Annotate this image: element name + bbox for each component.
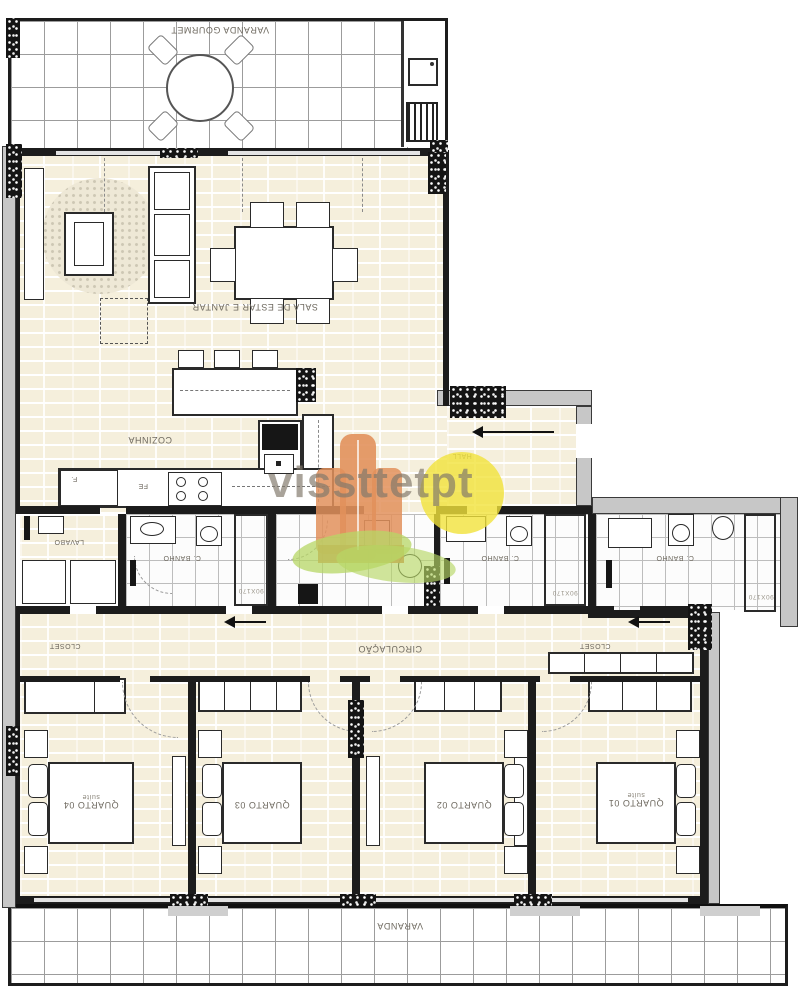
floor-plan: VARANDA GOURMET SALA DE ESTAR E JANTAR C… bbox=[0, 0, 800, 998]
wall bbox=[497, 506, 592, 514]
sofa-cushion bbox=[154, 260, 190, 298]
closet-divider bbox=[94, 680, 95, 712]
door-swing-arrow bbox=[226, 616, 266, 628]
pillow-icon bbox=[202, 764, 222, 798]
pillow-icon bbox=[28, 802, 48, 836]
column bbox=[6, 18, 20, 58]
wall bbox=[96, 606, 226, 614]
wall bbox=[588, 514, 596, 618]
column bbox=[160, 148, 198, 158]
island-dashed-line bbox=[180, 390, 290, 391]
wall bbox=[16, 676, 120, 682]
bath1-toilet-bowl bbox=[200, 526, 218, 542]
label-quarto1: QUARTO 01 suíte bbox=[586, 786, 686, 814]
column bbox=[428, 152, 446, 194]
chair-icon bbox=[296, 202, 330, 228]
sliding-door bbox=[56, 150, 172, 156]
armchair-seat bbox=[74, 222, 104, 266]
closet-divider bbox=[584, 654, 585, 672]
closet-divider bbox=[656, 654, 657, 672]
label-sala: SALA DE ESTAR E JANTAR bbox=[150, 300, 360, 314]
label-f: F. bbox=[64, 474, 84, 484]
column bbox=[430, 140, 448, 152]
bath2-toilet-bowl bbox=[510, 526, 528, 542]
nightstand-icon bbox=[676, 730, 700, 758]
bath3-sink-icon bbox=[608, 518, 652, 548]
lavabo-basin-icon bbox=[38, 516, 64, 534]
bath3-faucet-icon bbox=[606, 560, 612, 588]
bath1-basin bbox=[140, 522, 164, 536]
outer-wall bbox=[708, 612, 720, 904]
closet-right-unit bbox=[548, 652, 694, 674]
quarto4-suite: suíte bbox=[82, 794, 100, 801]
label-quarto2: QUARTO 02 bbox=[419, 798, 509, 812]
label-banho2: C. BANHO bbox=[460, 552, 540, 564]
wall bbox=[436, 506, 447, 514]
pillow-icon bbox=[504, 764, 524, 798]
label-closet-right: CLOSET bbox=[560, 640, 630, 652]
pillow-icon bbox=[28, 764, 48, 798]
quarto4-name: QUARTO 04 bbox=[63, 801, 118, 811]
quarto1-name: QUARTO 01 bbox=[608, 799, 663, 809]
bath2-faucet-icon bbox=[444, 558, 450, 584]
wall bbox=[447, 506, 467, 514]
sliding-door bbox=[228, 150, 420, 156]
passage-toilet-icon bbox=[364, 520, 390, 550]
window-sill bbox=[510, 906, 580, 916]
label-banho3: C. BANHO bbox=[630, 552, 720, 564]
wardrobe-divider bbox=[474, 682, 475, 710]
column bbox=[6, 144, 22, 198]
counter-dashed-line bbox=[318, 420, 319, 502]
wardrobe-q1 bbox=[588, 680, 692, 712]
wall bbox=[16, 606, 70, 614]
label-banho2-dim: 90X170 bbox=[548, 588, 582, 598]
bath2-sink-icon bbox=[446, 516, 486, 542]
wardrobe-divider bbox=[276, 682, 277, 710]
nightstand-icon bbox=[504, 846, 528, 874]
wall bbox=[188, 676, 196, 904]
wardrobe-q2 bbox=[414, 680, 502, 712]
label-fe: FE bbox=[128, 481, 158, 491]
wall bbox=[150, 676, 310, 682]
chair-icon bbox=[250, 202, 284, 228]
passage-shower-icon bbox=[398, 554, 422, 578]
grill-icon bbox=[406, 102, 438, 142]
entry-arrow bbox=[474, 426, 554, 438]
column bbox=[688, 604, 712, 650]
wall bbox=[408, 606, 478, 614]
wall bbox=[126, 506, 364, 514]
wall bbox=[528, 676, 536, 904]
tv-panel-icon bbox=[24, 168, 44, 300]
quarto1-suite: suíte bbox=[627, 792, 645, 799]
service-compartment-2 bbox=[70, 560, 116, 604]
faucet-dot-icon bbox=[430, 62, 434, 66]
chair-icon bbox=[210, 248, 236, 282]
kitchen-island-icon bbox=[172, 368, 298, 416]
wall bbox=[570, 676, 704, 682]
nightstand-icon bbox=[24, 730, 48, 758]
bath1-faucet-icon bbox=[130, 560, 136, 586]
wall bbox=[16, 506, 100, 514]
column bbox=[424, 566, 440, 606]
entry-door-gap bbox=[576, 424, 592, 458]
column bbox=[170, 894, 208, 906]
window-sill bbox=[168, 906, 228, 916]
label-quarto3: QUARTO 03 bbox=[217, 798, 307, 812]
window-sill bbox=[700, 906, 760, 916]
stool-icon bbox=[252, 350, 278, 368]
label-quarto4: QUARTO 04 suíte bbox=[46, 788, 136, 816]
wall-panel-icon bbox=[172, 756, 186, 846]
burner-icon bbox=[176, 491, 186, 501]
column bbox=[340, 894, 376, 906]
service-compartment-1 bbox=[22, 560, 66, 604]
nightstand-icon bbox=[24, 846, 48, 874]
label-circulacao: CIRCULAÇÃO bbox=[340, 642, 440, 656]
closet-left-unit bbox=[24, 678, 126, 714]
door-swing-arrow bbox=[630, 616, 670, 628]
wall bbox=[252, 606, 382, 614]
bedroom-window bbox=[208, 897, 340, 903]
closet-divider bbox=[620, 654, 621, 672]
wall bbox=[16, 150, 20, 512]
wall-panel-icon bbox=[366, 756, 380, 846]
label-lavabo: LAVABO bbox=[26, 536, 112, 548]
ceiling-dashed-line bbox=[362, 158, 363, 212]
burner-icon bbox=[198, 491, 208, 501]
wardrobe-divider bbox=[444, 682, 445, 710]
coffee-table-dashed bbox=[100, 298, 148, 344]
wall bbox=[268, 514, 276, 606]
label-hall: HALL bbox=[438, 450, 486, 462]
cooktop-icon bbox=[168, 472, 222, 506]
label-banho1-dim: 90X170 bbox=[236, 586, 266, 596]
wardrobe-divider bbox=[250, 682, 251, 710]
label-cozinha: COZINHA bbox=[110, 434, 190, 446]
column bbox=[450, 386, 506, 418]
oven-door bbox=[262, 424, 298, 450]
bath3-toilet-bowl bbox=[672, 524, 690, 542]
burner-icon bbox=[198, 477, 208, 487]
appliance-knob bbox=[276, 461, 281, 466]
balcony-bottom-floor bbox=[8, 904, 788, 986]
nightstand-icon bbox=[676, 846, 700, 874]
outer-wall bbox=[2, 146, 16, 908]
column bbox=[348, 700, 364, 758]
column bbox=[296, 368, 316, 402]
burner-icon bbox=[176, 477, 186, 487]
label-banho1: C. BANHO bbox=[142, 552, 222, 564]
label-banho3-dim: 90X170 bbox=[746, 592, 776, 602]
wall bbox=[118, 514, 126, 606]
nightstand-icon bbox=[198, 730, 222, 758]
wardrobe-divider bbox=[224, 682, 225, 710]
dining-table-icon bbox=[234, 226, 334, 300]
passage-dark-fixture bbox=[298, 584, 318, 604]
sofa-cushion bbox=[154, 214, 190, 256]
label-varanda-gourmet: VARANDA GOURMET bbox=[120, 24, 320, 36]
column bbox=[514, 894, 552, 906]
column bbox=[6, 726, 20, 776]
stool-icon bbox=[214, 350, 240, 368]
bedroom-window bbox=[34, 897, 170, 903]
label-varanda: VARANDA bbox=[330, 920, 470, 932]
wall bbox=[700, 612, 708, 904]
round-table-icon bbox=[166, 54, 234, 122]
nightstand-icon bbox=[504, 730, 528, 758]
sofa-cushion bbox=[154, 172, 190, 210]
ceiling-dashed-line bbox=[104, 158, 105, 212]
outer-wall bbox=[592, 497, 798, 514]
wardrobe-divider bbox=[622, 682, 623, 710]
outer-wall bbox=[780, 497, 798, 627]
chair-icon bbox=[332, 248, 358, 282]
stool-icon bbox=[178, 350, 204, 368]
bath3-bidet-icon bbox=[712, 516, 734, 540]
bedroom-window bbox=[552, 897, 688, 903]
wardrobe-divider bbox=[656, 682, 657, 710]
upper-cabinet-dashed bbox=[232, 486, 330, 487]
label-closet-left: CLOSET bbox=[30, 640, 100, 652]
nightstand-icon bbox=[198, 846, 222, 874]
wall bbox=[400, 676, 540, 682]
bedroom-window bbox=[376, 897, 514, 903]
ceiling-dashed-line bbox=[242, 158, 243, 212]
